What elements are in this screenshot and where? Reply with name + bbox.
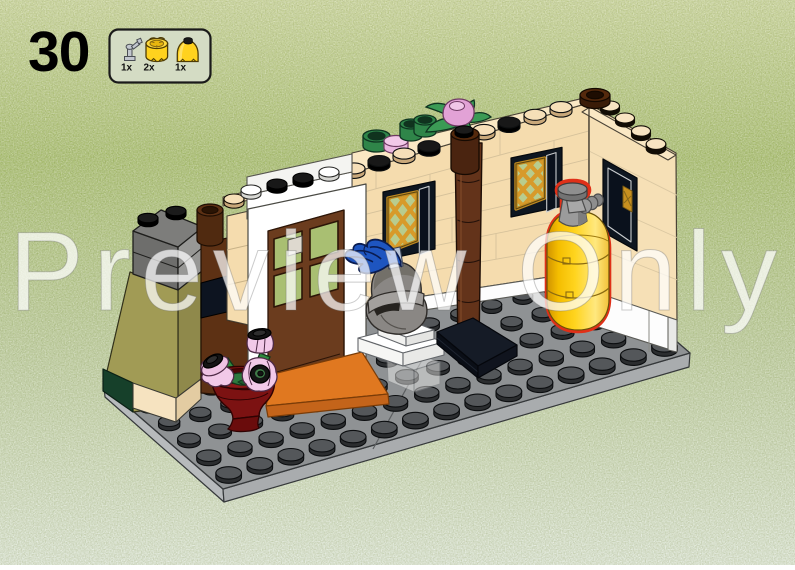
- svg-text:2x: 2x: [144, 63, 156, 74]
- svg-text:1x: 1x: [121, 63, 133, 74]
- svg-text:Preview Only: Preview Only: [9, 209, 777, 334]
- svg-text:30: 30: [28, 20, 89, 84]
- svg-text:1x: 1x: [175, 63, 187, 74]
